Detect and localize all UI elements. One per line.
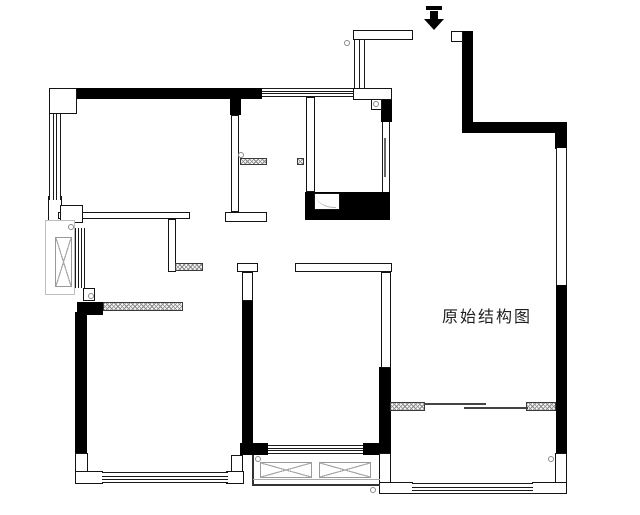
wall-entry-post: [451, 31, 463, 42]
wall-kitchen-top: [295, 263, 392, 272]
hatch-wall-corridor: [240, 158, 267, 165]
wall-topright-horizontal: [462, 122, 566, 133]
wall-left-exterior: [75, 312, 87, 455]
window-canopy-side: [354, 40, 365, 88]
wall-right-exterior: [556, 285, 567, 453]
bay-window-x: [55, 237, 72, 287]
hinge-circle-left: [88, 293, 94, 299]
hatch-wall-hall-stub: [175, 263, 203, 271]
entrance-arrow-bar-icon: [426, 6, 442, 10]
hinge-circle-balcony-left: [255, 456, 261, 462]
entrance-arrow-icon: [424, 19, 444, 30]
window-bedroom1-left: [49, 114, 61, 200]
wall-mid-right-vertical: [379, 367, 391, 455]
corner-livingroom-left-b: [379, 482, 413, 494]
wall-hall-tfoot: [225, 212, 267, 222]
wall-tpillar-stem: [242, 272, 253, 301]
wall-mid-left-vertical: [242, 300, 253, 443]
corner-block-topleft: [49, 88, 77, 114]
hinge-circle-canopy: [344, 40, 350, 46]
hatch-stub-small: [297, 158, 304, 165]
balcony-window-x2: [319, 462, 371, 478]
window-bay-inner: [75, 228, 85, 288]
wall-column-hall-top: [230, 98, 241, 115]
corner-livingroom-right-b: [532, 482, 567, 494]
window-top-hall: [262, 88, 353, 97]
balcony-bottom-edge: [253, 484, 380, 486]
corner-bedroom2-right-b: [226, 471, 244, 484]
wall-bath-left: [306, 97, 315, 192]
window-bedroom2-bottom: [102, 472, 228, 483]
wall-tpillar-cap: [237, 263, 258, 272]
wall-entry-vertical: [462, 31, 473, 133]
shower-tray: [314, 193, 340, 210]
wall-balcony-left-block: [240, 443, 268, 455]
plan-title: 原始结构图: [442, 303, 532, 327]
hinge-circle-living: [548, 456, 554, 462]
window-livingroom-bottom: [412, 483, 533, 494]
door-leaf-bath: [384, 138, 386, 177]
hatch-wall-living-right: [526, 402, 556, 411]
sliding-door-leaf2: [464, 407, 528, 409]
hinge-circle-bath: [373, 101, 379, 107]
hinge-circle-step: [68, 224, 74, 230]
balcony-left-edge: [252, 455, 254, 486]
window-balcony-top: [268, 445, 363, 454]
hatch-wall-living-left: [390, 402, 425, 411]
hinge-circle-balcony-right: [370, 487, 376, 493]
window-right-exterior: [556, 148, 567, 285]
hatch-wall-hall-left: [103, 302, 183, 311]
wall-kitchen-right: [381, 272, 391, 368]
wall-hall-vertical: [231, 115, 239, 212]
wall-column-bath-corner: [381, 100, 392, 122]
balcony-window-x1: [260, 462, 312, 478]
floor-plan: 原始结构图: [0, 0, 640, 515]
wall-column-right-top: [555, 122, 567, 149]
corner-bottomleft-b: [75, 471, 103, 484]
sliding-door-leaf1: [424, 403, 486, 405]
wall-canopy-top: [353, 30, 413, 40]
balcony-inner-line: [253, 479, 380, 480]
hinge-circle-corridor: [238, 152, 244, 158]
